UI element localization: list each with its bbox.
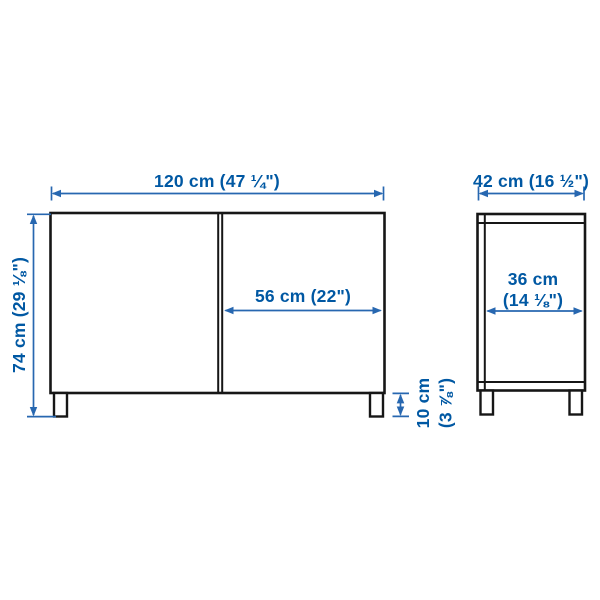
side-view-front-leg [481, 391, 494, 415]
side-depth-dimension: 42 cm (16 ½") [473, 171, 589, 201]
front-view-right-leg [370, 393, 383, 417]
front-view: 120 cm (47 ¼") 74 cm (29 ⅛") 56 cm (22")… [9, 171, 456, 428]
interior-depth-label-line2: (14 ⅛") [503, 290, 563, 310]
leg-height-dimension: 10 cm (3 ⅞") [393, 378, 456, 429]
diagram-canvas: 120 cm (47 ¼") 74 cm (29 ⅛") 56 cm (22")… [0, 0, 600, 600]
interior-depth-label-line1: 36 cm [508, 269, 559, 289]
side-depth-label: 42 cm (16 ½") [473, 171, 589, 191]
front-width-label: 120 cm (47 ¼") [154, 171, 280, 191]
front-width-dimension: 120 cm (47 ¼") [52, 171, 384, 201]
front-height-label: 74 cm (29 ⅛") [9, 257, 29, 373]
side-view: 42 cm (16 ½") 36 cm (14 ⅛") [473, 171, 589, 415]
front-view-left-leg [54, 393, 67, 417]
leg-height-label-line1: 10 cm [413, 378, 433, 429]
dimension-diagram: 120 cm (47 ¼") 74 cm (29 ⅛") 56 cm (22")… [0, 0, 600, 600]
leg-height-label-line2: (3 ⅞") [436, 378, 456, 428]
front-height-dimension: 74 cm (29 ⅛") [9, 214, 56, 416]
side-view-back-leg [570, 391, 583, 415]
door-width-label: 56 cm (22") [255, 286, 351, 306]
